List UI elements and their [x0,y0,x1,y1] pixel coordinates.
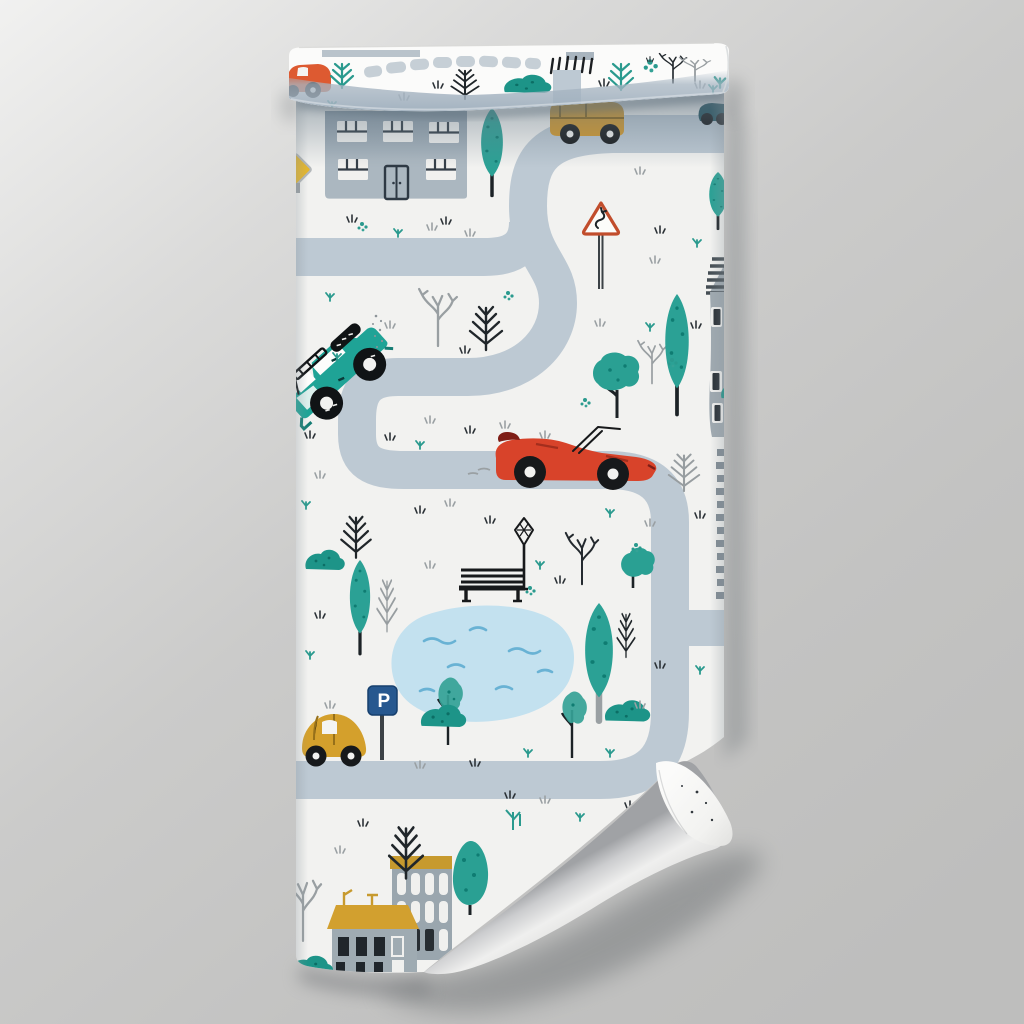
svg-text:P: P [378,691,391,712]
